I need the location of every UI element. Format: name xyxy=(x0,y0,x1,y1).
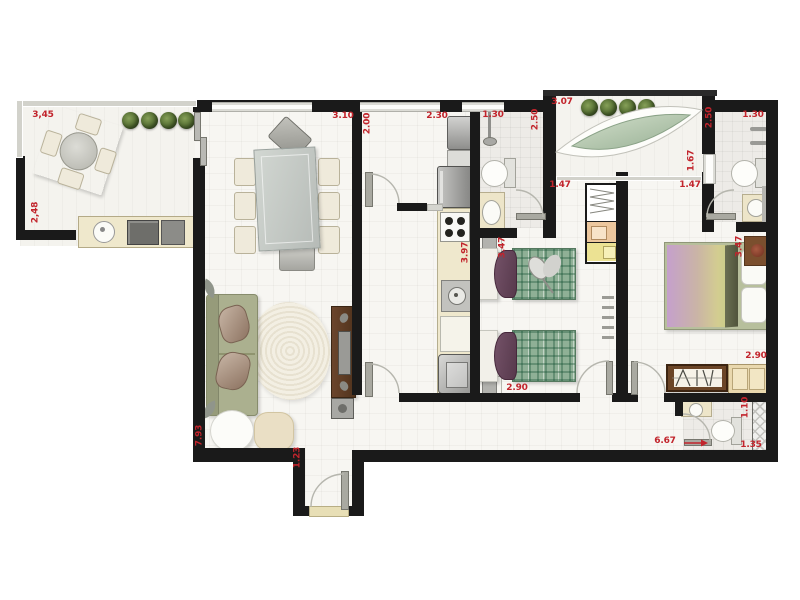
wardrobe xyxy=(666,364,728,392)
dim-hall-length: 6.67 xyxy=(648,436,682,447)
floor-plan: 3,45 2,48 3.10 2.00 2.30 1.30 2.50 3.07 … xyxy=(0,0,800,600)
toilet-icon xyxy=(481,160,508,187)
dining-chair xyxy=(318,226,340,254)
dim-service-width: 2.30 xyxy=(420,111,454,122)
door-leaf xyxy=(631,361,638,395)
balcony-rail xyxy=(16,100,197,107)
speaker-icon xyxy=(331,398,354,419)
dim-bath-right-width: 1.30 xyxy=(736,110,770,121)
plant-icon xyxy=(122,112,139,129)
bathroom-vanity xyxy=(681,400,712,417)
wall-shelf xyxy=(602,316,614,319)
single-bed xyxy=(512,248,576,300)
wall xyxy=(16,230,76,240)
toilet-icon xyxy=(711,420,735,442)
bed-pillow xyxy=(494,332,517,380)
wall-shelf xyxy=(602,306,614,309)
door-leaf xyxy=(606,361,613,395)
dim-living-length: 7.93 xyxy=(195,419,206,453)
shower-icon xyxy=(750,127,767,131)
dining-chair xyxy=(234,192,256,220)
cooler-icon xyxy=(161,220,185,245)
wall-shelf xyxy=(602,296,614,299)
grill-icon xyxy=(127,220,159,245)
dresser xyxy=(728,364,768,394)
wall xyxy=(399,393,580,402)
dim-dining-width: 3.10 xyxy=(326,111,360,122)
bed-cover xyxy=(667,245,728,327)
wall xyxy=(397,203,427,211)
dim-entry-width: 1.23 xyxy=(293,441,304,475)
door-leaf xyxy=(365,172,373,207)
plant-icon xyxy=(141,112,158,129)
dining-chair xyxy=(318,192,340,220)
balcony-rail xyxy=(16,100,23,158)
wall xyxy=(766,100,778,462)
entry-door-leaf xyxy=(341,471,349,510)
pouf xyxy=(210,410,254,452)
dim-closet-left-width: 1.47 xyxy=(543,180,577,191)
plant-icon xyxy=(619,99,636,116)
wall-shelf xyxy=(602,336,614,339)
dim-balcony-left-width: 3,45 xyxy=(26,110,60,121)
dining-chair xyxy=(318,158,340,186)
dim-kids-room-width: 2.90 xyxy=(500,383,534,394)
shower-head-icon xyxy=(483,137,497,146)
washing-machine-icon xyxy=(438,354,474,394)
wall xyxy=(470,228,517,238)
sink-icon xyxy=(689,403,703,417)
sink-icon xyxy=(93,221,115,243)
door-leaf xyxy=(684,439,712,446)
oven-icon xyxy=(437,166,474,208)
shower-head-icon xyxy=(750,141,767,145)
dim-bath-top-width: 1.30 xyxy=(476,110,510,121)
single-bed xyxy=(512,330,576,382)
wall xyxy=(702,222,710,232)
dim-balcony-right-window: 1.67 xyxy=(687,144,698,178)
tv-icon xyxy=(338,331,351,375)
wall-shelf xyxy=(602,326,614,329)
wall xyxy=(293,506,309,516)
dim-lavabo-depth: 1.10 xyxy=(741,391,752,425)
plant-icon xyxy=(581,99,598,116)
dim-balcony-right-depth: 2.50 xyxy=(705,101,716,135)
dim-kids-room-length: 3.47 xyxy=(498,231,509,265)
dim-bath-top-depth: 2.50 xyxy=(531,103,542,137)
pouf xyxy=(254,412,294,451)
dining-chair xyxy=(234,226,256,254)
wall xyxy=(352,100,362,395)
door-leaf xyxy=(365,362,373,397)
dim-balcony-left-depth: 2,48 xyxy=(31,196,42,230)
wall xyxy=(616,172,628,393)
dining-table xyxy=(253,146,320,251)
dining-chair xyxy=(234,158,256,186)
wall xyxy=(543,90,717,96)
dim-lavabo-width: 1.35 xyxy=(734,440,768,451)
wall xyxy=(470,100,480,402)
wall xyxy=(356,450,778,462)
dim-closet-right-width: 1.47 xyxy=(673,180,707,191)
door-leaf xyxy=(516,213,546,220)
wall xyxy=(193,448,305,462)
barbecue-counter xyxy=(78,216,195,248)
window xyxy=(212,102,312,112)
wall xyxy=(664,393,778,402)
bed-pillow xyxy=(741,287,767,323)
plant-icon xyxy=(178,112,195,129)
plant-icon xyxy=(160,112,177,129)
counter-board xyxy=(440,316,472,352)
plant-icon xyxy=(600,99,617,116)
dim-kitchen-length: 3.97 xyxy=(461,236,472,270)
wall xyxy=(675,402,683,416)
kitchen-sink xyxy=(441,280,472,312)
bathroom-vanity xyxy=(477,192,505,230)
dim-master-room-length: 3.47 xyxy=(735,230,746,264)
dim-service-depth: 2.00 xyxy=(363,107,374,141)
sink-icon xyxy=(482,200,501,225)
dim-master-room-width: 2.90 xyxy=(739,351,773,362)
plant-icon xyxy=(638,99,655,116)
wall xyxy=(193,158,205,460)
pass-through xyxy=(427,204,443,211)
wall xyxy=(16,156,25,240)
dim-balcony-right-width: 3.07 xyxy=(545,97,579,108)
sliding-door xyxy=(200,137,207,166)
toilet-icon xyxy=(731,160,758,187)
door-leaf xyxy=(706,213,736,220)
